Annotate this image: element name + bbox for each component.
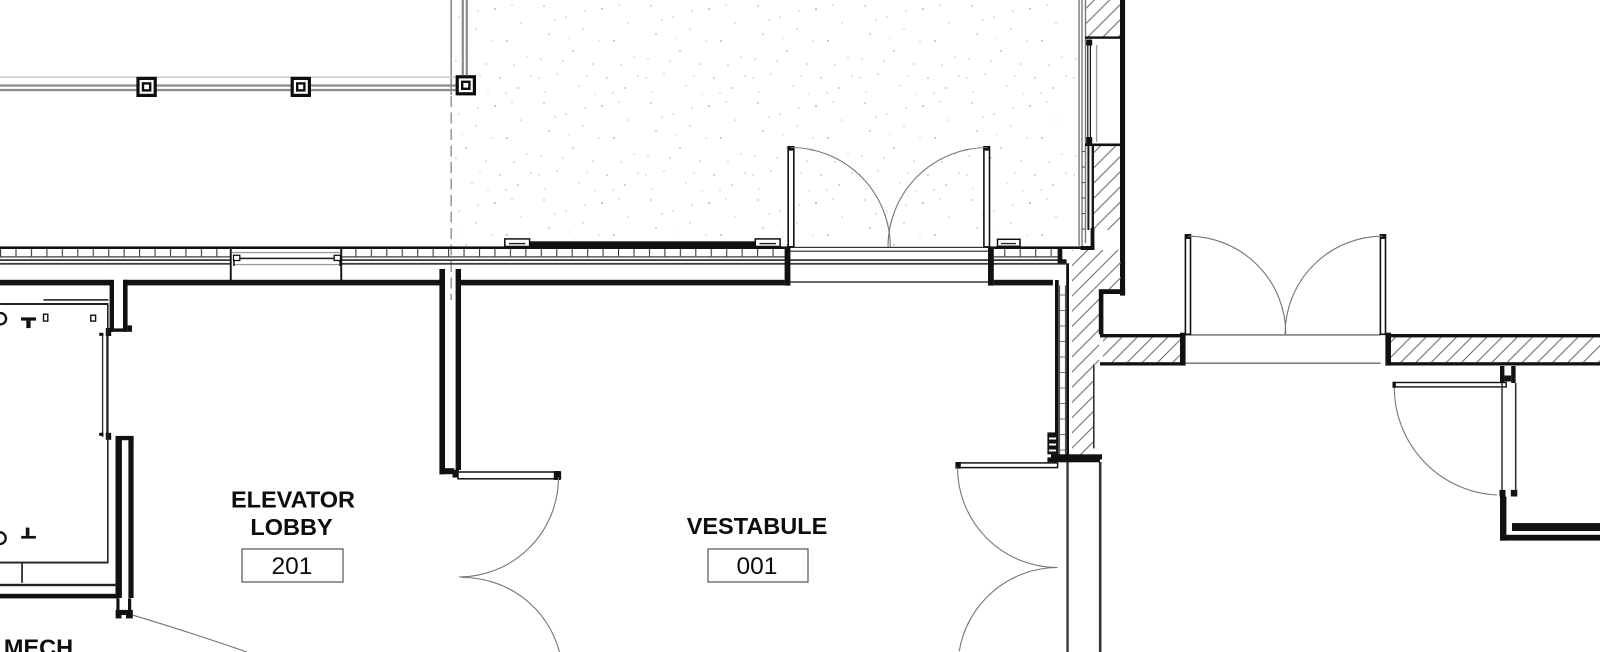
svg-text:VESTABULE: VESTABULE [687, 513, 828, 539]
svg-text:201: 201 [272, 553, 313, 580]
svg-text:MECH: MECH [4, 635, 73, 652]
svg-text:001: 001 [737, 553, 778, 580]
svg-text:ELEVATOR: ELEVATOR [231, 487, 355, 513]
svg-text:LOBBY: LOBBY [250, 514, 333, 540]
